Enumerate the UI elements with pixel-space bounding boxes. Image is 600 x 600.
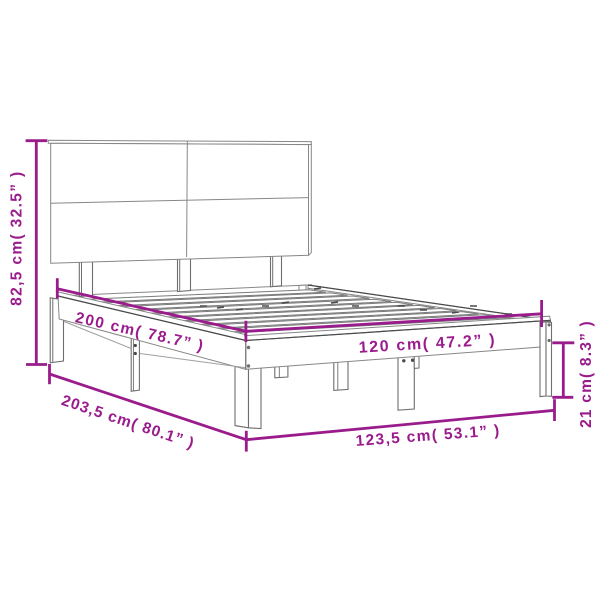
- svg-text:21 cm( 8.3” ): 21 cm( 8.3” ): [578, 320, 595, 428]
- svg-text:82,5 cm( 32.5” ): 82,5 cm( 32.5” ): [9, 171, 26, 306]
